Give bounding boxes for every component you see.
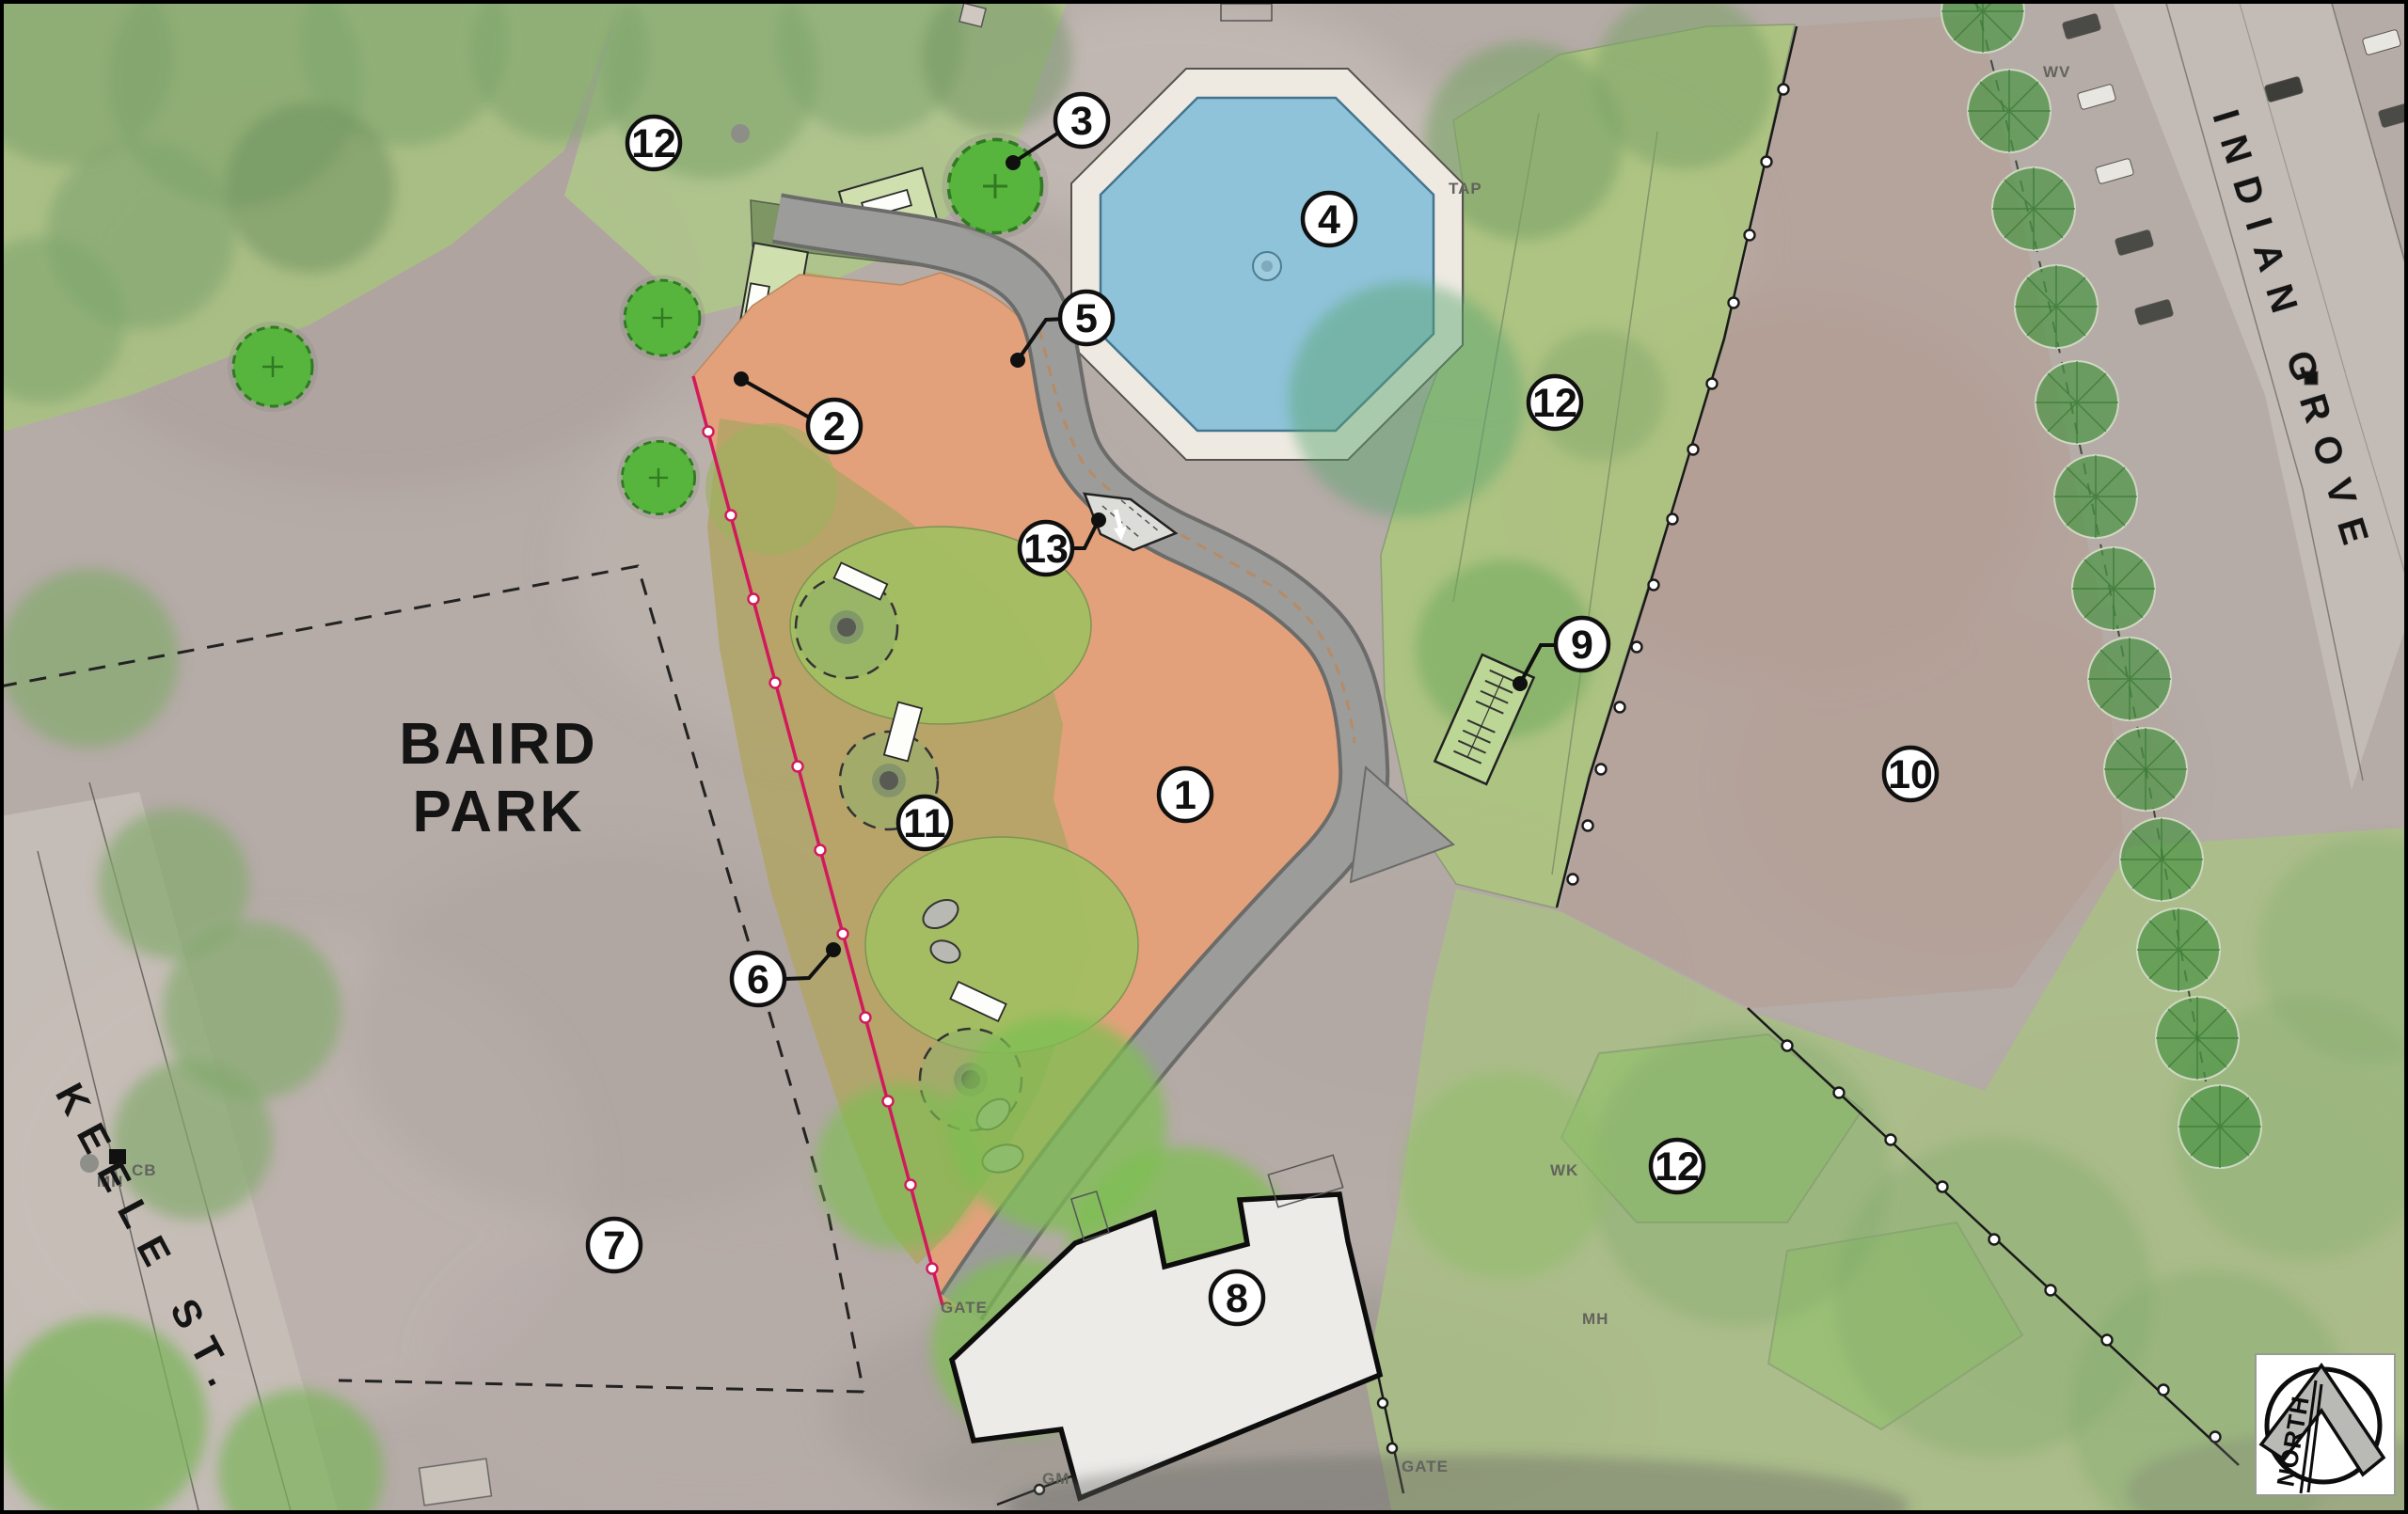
svg-text:12: 12 (631, 121, 676, 166)
label-tap: TAP (1449, 180, 1482, 197)
callout-5-path: 5 (1060, 292, 1113, 344)
svg-text:5: 5 (1075, 296, 1098, 341)
new-tree (617, 436, 700, 519)
callout-6-fence: 6 (732, 953, 784, 1005)
north-arrow: NORTH (2256, 1354, 2395, 1495)
svg-text:6: 6 (747, 957, 769, 1002)
new-tree (619, 275, 705, 360)
waste-bin (731, 124, 750, 143)
svg-text:8: 8 (1226, 1276, 1248, 1321)
svg-text:12: 12 (1655, 1144, 1700, 1190)
svg-text:10: 10 (1888, 752, 1933, 797)
label-gm: GM (1042, 1470, 1069, 1488)
site-plan-canvas: MH CB WV TAP WK MH GM GATE GATE 1 2 3 4 … (0, 0, 2408, 1514)
svg-text:1: 1 (1174, 773, 1196, 818)
label-wv: WV (2043, 63, 2070, 81)
site-plan-svg: MH CB WV TAP WK MH GM GATE GATE 1 2 3 4 … (0, 0, 2408, 1514)
label-wk: WK (1550, 1161, 1578, 1179)
svg-text:2: 2 (823, 404, 846, 449)
callout-3-new-tree: 3 (1055, 94, 1108, 147)
park-name-line2: PARK (412, 780, 584, 844)
callout-11-existing-trees: 11 (898, 796, 951, 849)
callout-12-southeast: 12 (1651, 1140, 1703, 1192)
callout-12-northwest: 12 (627, 117, 680, 169)
callout-12-east: 12 (1529, 376, 1581, 429)
park-name-line1: BAIRD (399, 712, 597, 777)
label-mh-lawn: MH (1582, 1310, 1608, 1328)
new-tree (228, 322, 318, 412)
callout-10-east-area: 10 (1884, 748, 1937, 800)
svg-text:13: 13 (1023, 527, 1069, 572)
callout-2-benches: 2 (808, 400, 861, 452)
svg-text:9: 9 (1571, 623, 1593, 668)
callout-8-building: 8 (1211, 1271, 1263, 1324)
callout-13-slide: 13 (1020, 522, 1072, 575)
callout-9-steps: 9 (1556, 618, 1608, 670)
label-gate-south: GATE (941, 1299, 988, 1317)
svg-text:4: 4 (1318, 197, 1340, 243)
svg-text:12: 12 (1532, 381, 1577, 426)
svg-text:7: 7 (603, 1223, 626, 1269)
svg-text:3: 3 (1070, 99, 1093, 144)
callout-4-wading-pool: 4 (1303, 193, 1355, 245)
svg-text:11: 11 (903, 801, 945, 846)
label-gate-east: GATE (1402, 1458, 1449, 1475)
callout-1-playground: 1 (1159, 768, 1212, 821)
callout-7-open-field: 7 (588, 1219, 641, 1271)
